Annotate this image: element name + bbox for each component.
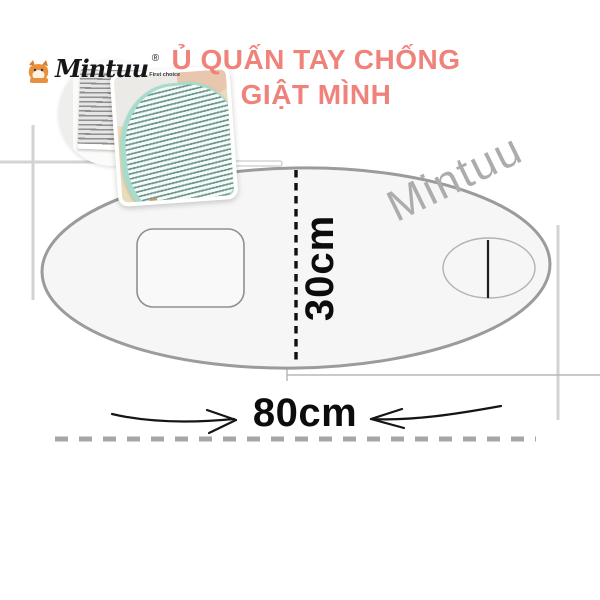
brand-name: Mintuu (55, 54, 148, 83)
product-image: Mintuu ® First choice Ủ QUẤN TAY CHỐNG G… (0, 0, 600, 600)
product-title-line2: GIẬT MÌNH (168, 77, 464, 112)
brand-logo: Mintuu ® First choice (26, 56, 148, 85)
swaddle-pocket (137, 229, 244, 307)
width-arrow-left (112, 410, 236, 433)
product-title: Ủ QUẤN TAY CHỐNG GIẬT MÌNH (168, 42, 464, 112)
registered-mark: ® (152, 53, 159, 64)
fox-icon (26, 59, 53, 85)
width-arrow-right (371, 406, 501, 428)
width-dimension-label: 80cm (242, 392, 368, 434)
height-dimension-label: 30cm (299, 203, 341, 333)
product-title-line1: Ủ QUẤN TAY CHỐNG (168, 42, 464, 77)
